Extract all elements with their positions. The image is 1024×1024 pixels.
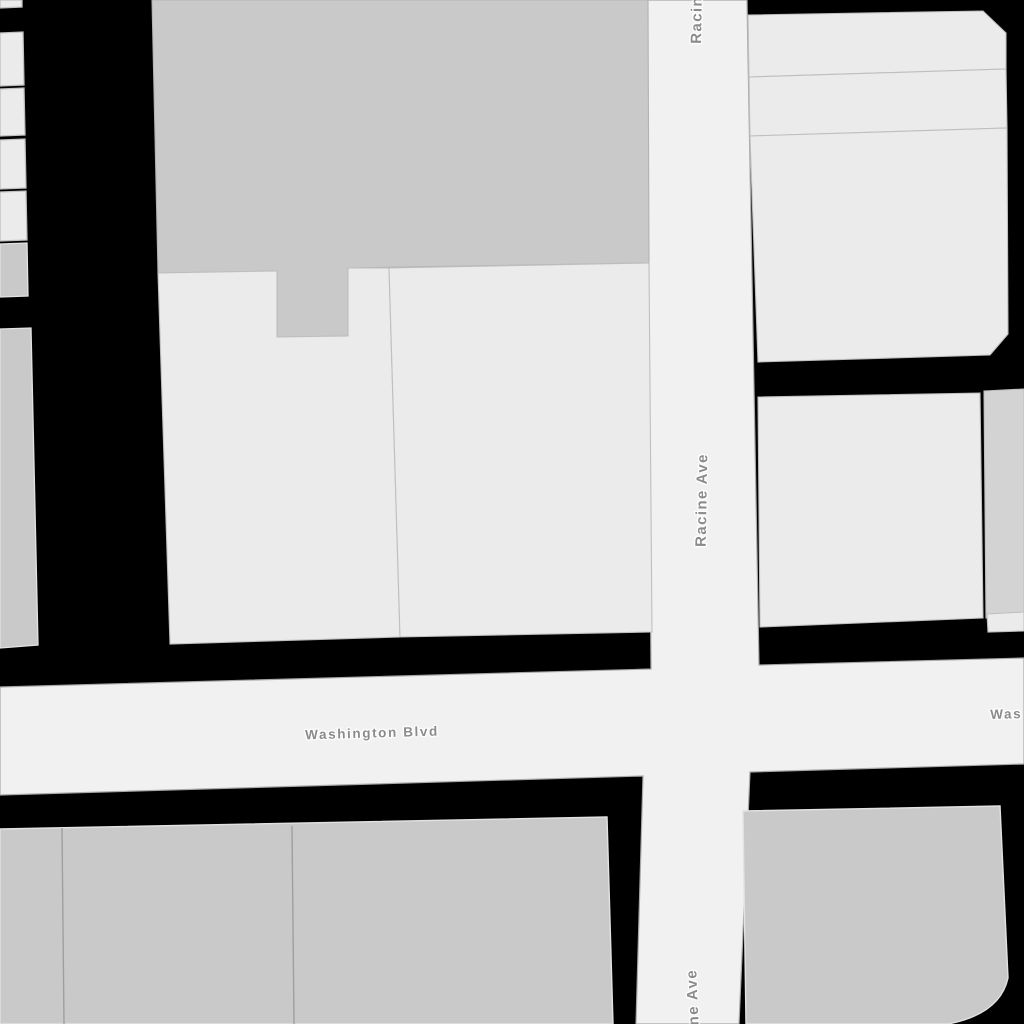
building-parcel-ne-1 <box>748 11 1006 77</box>
building-parcel-nw-2 <box>0 32 24 86</box>
building-parcel-nw-4 <box>0 139 26 189</box>
map-canvas[interactable]: Racine Racine Ave ine Ave Washington Blv… <box>0 0 1024 1024</box>
building-parcel-nw-3 <box>0 88 25 136</box>
building-parcel-east-main <box>758 393 983 627</box>
building-block-se <box>743 806 1008 1024</box>
map-tile-layer <box>0 0 1024 1024</box>
building-parcel-east-edge <box>984 389 1024 618</box>
building-parcel-nw-6 <box>0 243 28 297</box>
building-parcel-nw-7 <box>0 328 38 648</box>
building-parcel-east-sliver <box>987 612 1024 632</box>
building-parcel-ne-2 <box>749 69 1007 136</box>
building-parcel-nw-1 <box>0 0 22 8</box>
building-parcel-ne-3 <box>750 128 1008 362</box>
building-parcel-nw-5 <box>0 191 27 241</box>
building-parcel-center-east <box>389 263 652 637</box>
building-block-sw <box>0 817 613 1024</box>
